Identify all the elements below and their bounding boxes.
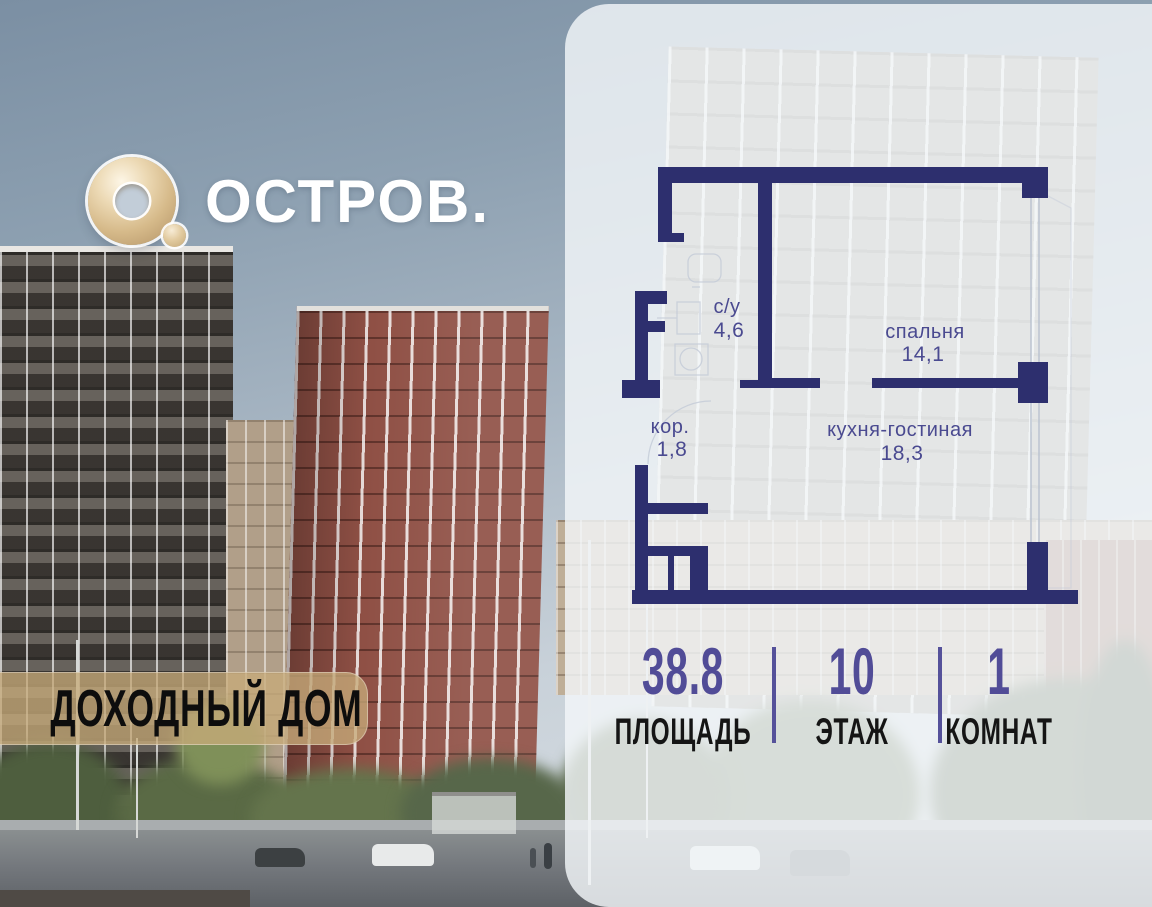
room-area-corridor: 1,8 (657, 438, 688, 461)
car (255, 848, 305, 867)
stat-area-label: ПЛОЩАДЬ (610, 713, 755, 750)
stat-rooms: 1 КОМНАТ (889, 638, 1109, 750)
bus-shelter (432, 792, 516, 834)
road-shadow (0, 890, 250, 907)
stat-rooms-label: КОМНАТ (926, 713, 1071, 750)
project-badge: ДОХОДНЫЙ ДОМ (0, 672, 368, 745)
lamp-pole (136, 738, 138, 838)
car (372, 844, 434, 866)
room-area-kitchen-living: 18,3 (881, 442, 924, 465)
stat-area-value: 38.8 (615, 638, 751, 704)
room-area-bathroom: 4,6 (714, 319, 745, 342)
floor-plan-drawing: с/у 4,6 спальня 14,1 кор. 1,8 кухня-гост… (615, 150, 1095, 625)
stat-rooms-value: 1 (931, 638, 1067, 704)
fixture-lines (648, 196, 1071, 588)
brand-logo-text: ОСТРОВ. (205, 172, 490, 232)
room-name-bedroom: спальня (885, 321, 964, 343)
room-name-corridor: кор. (651, 416, 690, 438)
brand-dot-icon (163, 224, 186, 247)
pedestrian (544, 843, 552, 869)
pedestrian (530, 848, 536, 868)
room-area-bedroom: 14,1 (902, 343, 945, 366)
apartment-card: с/у 4,6 спальня 14,1 кор. 1,8 кухня-гост… (0, 0, 1152, 907)
walls (622, 167, 1078, 604)
project-badge-label: ДОХОДНЫЙ ДОМ (51, 683, 363, 735)
room-name-bathroom: с/у (713, 296, 740, 318)
brand-ring-hole (115, 184, 149, 218)
room-name-kitchen-living: кухня-гостиная (827, 419, 973, 441)
